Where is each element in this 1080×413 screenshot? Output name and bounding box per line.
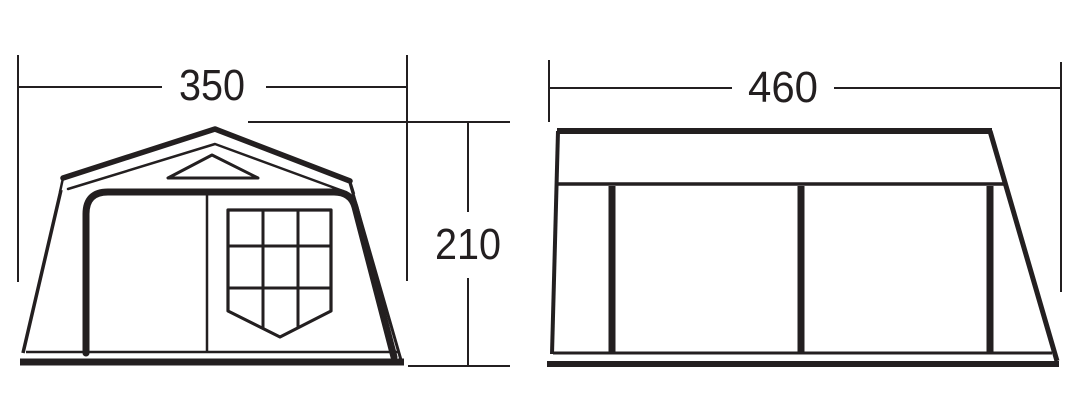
diagram-canvas: 350 210 460 [0,0,1080,413]
side-right-edge [990,131,1057,361]
front-door-frame [86,192,394,357]
front-roof-outer-line [63,129,350,181]
front-left-wall-line [23,190,61,353]
front-width-dim-label: 350 [179,61,245,110]
side-left-edge [552,131,558,354]
front-height-dim-label: 210 [435,220,501,269]
front-roof-vent-triangle [168,155,258,178]
front-window-outline [228,210,331,337]
dimension-front-width: 350 [18,55,407,282]
front-view-drawing [20,129,404,362]
tent-dimension-diagram: 350 210 460 [0,0,1080,413]
front-roof-inner-line [68,144,343,191]
dimension-side-width: 460 [549,60,1061,292]
side-width-dim-label: 460 [748,63,818,112]
side-view-drawing [547,131,1059,364]
